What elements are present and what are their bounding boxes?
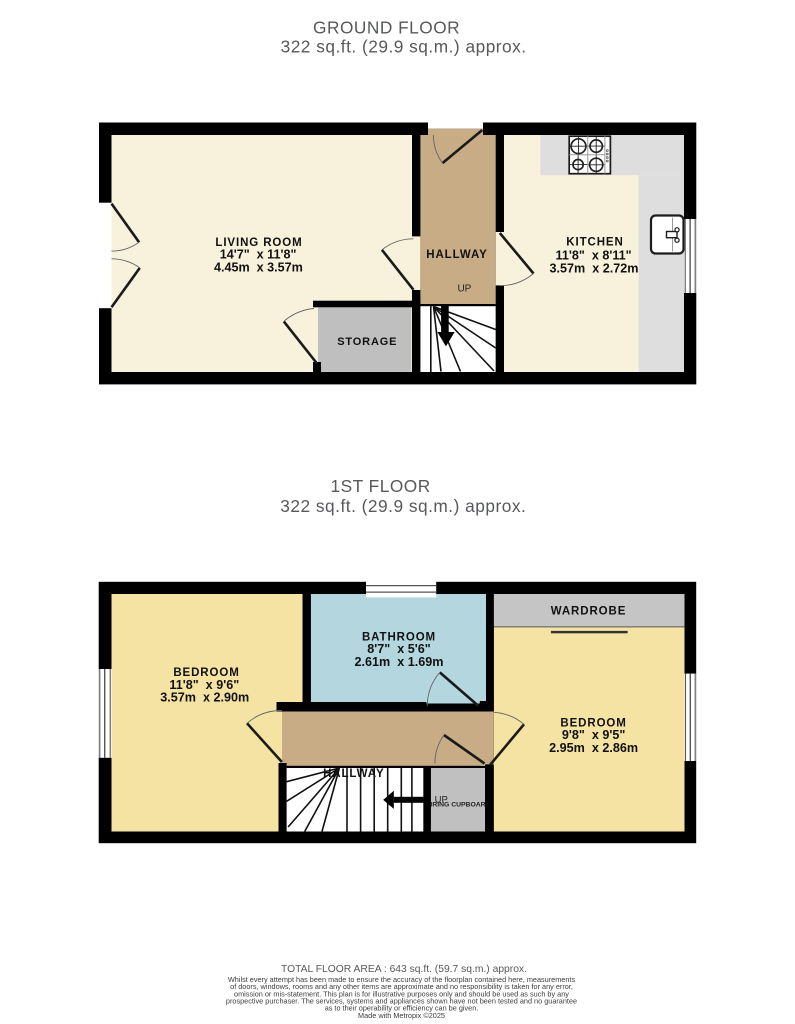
svg-text:3.57m x 2.72m: 3.57m x 2.72m	[550, 261, 639, 275]
svg-text:HALLWAY: HALLWAY	[323, 768, 384, 780]
svg-text:STORAGE: STORAGE	[337, 336, 397, 348]
svg-text:8'7" x 5'6": 8'7" x 5'6"	[367, 642, 430, 656]
svg-text:2.95m x 2.86m: 2.95m x 2.86m	[549, 741, 638, 755]
svg-text:9'8" x 9'5": 9'8" x 9'5"	[562, 728, 625, 742]
svg-text:322 sq.ft. (29.9 sq.m.) approx: 322 sq.ft. (29.9 sq.m.) approx.	[280, 496, 526, 516]
svg-text:2.61m x 1.69m: 2.61m x 1.69m	[355, 655, 444, 669]
svg-text:3.57m x 2.90m: 3.57m x 2.90m	[160, 690, 249, 704]
svg-text:GROUND FLOOR: GROUND FLOOR	[313, 18, 460, 38]
svg-text:11'8" x 8'11": 11'8" x 8'11"	[556, 248, 632, 262]
svg-text:AIRING CUPBOARD: AIRING CUPBOARD	[426, 801, 491, 808]
svg-text:TOTAL FLOOR AREA : 643 sq.ft.: TOTAL FLOOR AREA : 643 sq.ft. (59.7 sq.m…	[281, 964, 527, 975]
svg-text:322 sq.ft. (29.9 sq.m.) approx: 322 sq.ft. (29.9 sq.m.) approx.	[281, 36, 527, 56]
svg-text:BEDROOM: BEDROOM	[173, 667, 239, 679]
svg-text:Made with Metropix ©2025: Made with Metropix ©2025	[358, 1011, 445, 1020]
svg-text:HALLWAY: HALLWAY	[426, 249, 487, 261]
svg-text:KITCHEN: KITCHEN	[566, 236, 623, 248]
svg-text:UP: UP	[457, 284, 471, 295]
svg-text:WARDROBE: WARDROBE	[551, 605, 627, 617]
svg-text:4.45m x 3.57m: 4.45m x 3.57m	[214, 261, 303, 275]
svg-text:1ST FLOOR: 1ST FLOOR	[330, 476, 430, 496]
